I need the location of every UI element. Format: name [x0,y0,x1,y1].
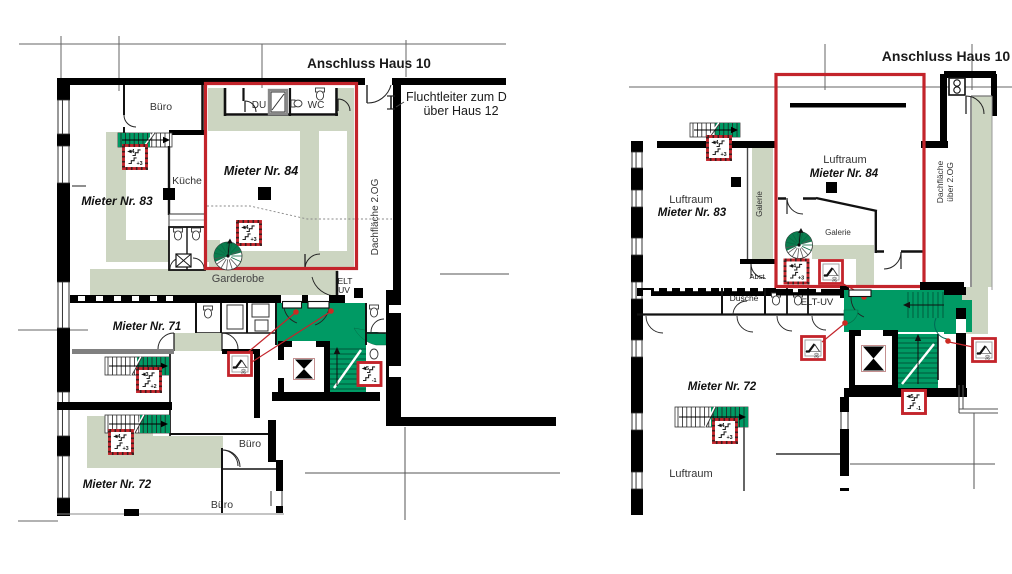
svg-text:Dachfläche 2.OG: Dachfläche 2.OG [370,178,381,255]
svg-text:UV: UV [338,285,350,295]
svg-text:Küche: Küche [172,175,202,187]
svg-text:Luftraum: Luftraum [669,468,712,480]
svg-text:über 2.OG: über 2.OG [945,162,955,202]
svg-text:+2: +2 [151,384,157,390]
svg-text:Luftraum: Luftraum [823,154,866,166]
svg-text:30: 30 [833,277,839,283]
svg-text:+3: +3 [721,152,727,158]
svg-text:WC: WC [308,100,325,111]
svg-text:+3: +3 [123,446,129,452]
svg-text:Dachfläche: Dachfläche [935,160,945,203]
svg-text:30: 30 [986,355,992,361]
svg-text:Mieter Nr. 71: Mieter Nr. 71 [113,321,181,333]
svg-text:+3: +3 [727,435,733,441]
svg-text:Luftraum: Luftraum [669,194,712,206]
svg-text:Galerie: Galerie [755,191,764,217]
svg-text:Mieter Nr. 84: Mieter Nr. 84 [810,168,879,180]
svg-text:Büro: Büro [239,438,261,450]
svg-text:ELT-UV: ELT-UV [801,297,834,308]
svg-text:30: 30 [242,369,248,375]
svg-text:+3: +3 [137,161,143,167]
svg-text:Garderobe: Garderobe [212,273,265,285]
svg-text:Mieter Nr. 72: Mieter Nr. 72 [83,479,152,491]
svg-text:30: 30 [815,353,821,359]
svg-text:über Haus 12: über Haus 12 [423,104,498,118]
svg-text:Mieter Nr. 83: Mieter Nr. 83 [81,194,153,208]
svg-text:-1: -1 [372,378,377,384]
svg-text:Anschluss Haus 10: Anschluss Haus 10 [307,56,431,71]
svg-text:Mieter Nr. 84: Mieter Nr. 84 [224,164,298,178]
svg-text:Anschluss Haus 10: Anschluss Haus 10 [882,48,1011,64]
svg-text:Fluchtleiter zum D: Fluchtleiter zum D [406,90,507,104]
svg-text:-1: -1 [916,406,921,412]
svg-text:+3: +3 [251,237,257,243]
svg-text:Büro: Büro [150,101,172,113]
svg-text:Galerie: Galerie [825,228,851,237]
svg-text:Abst.: Abst. [749,272,766,281]
svg-text:Mieter Nr. 83: Mieter Nr. 83 [658,207,727,219]
svg-text:Mieter Nr. 72: Mieter Nr. 72 [688,381,757,393]
svg-text:+3: +3 [798,276,804,282]
